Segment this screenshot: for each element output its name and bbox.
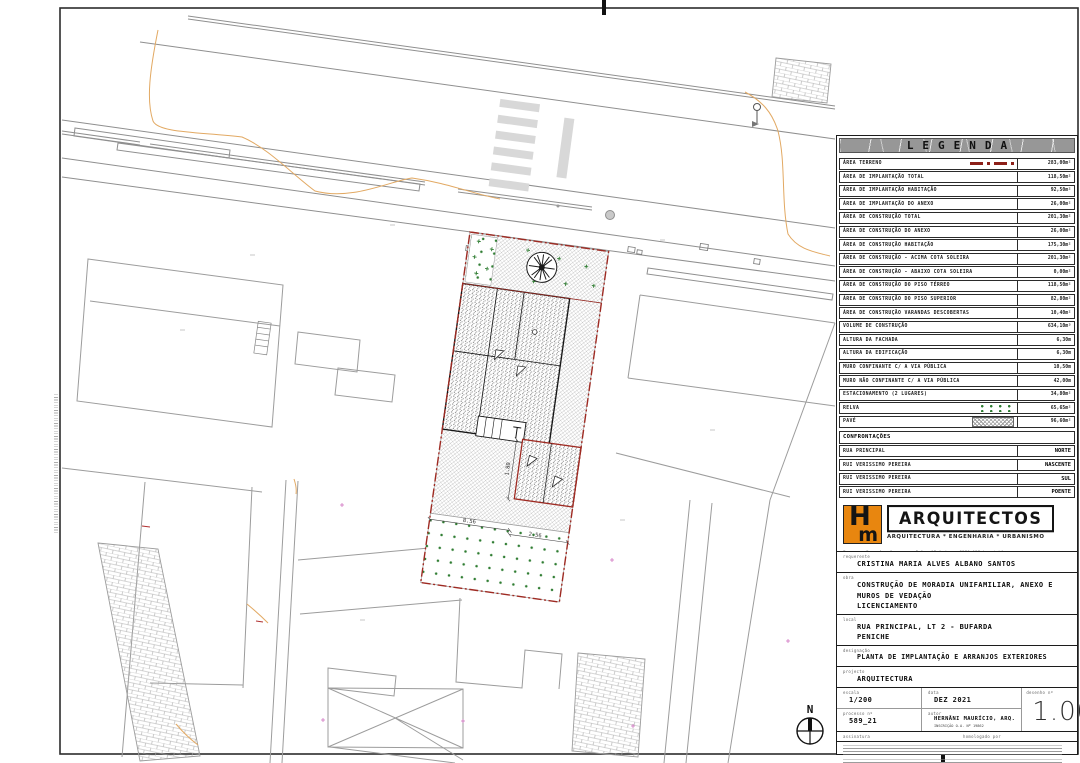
legend-row-label: ÁREA TERRENO (840, 159, 970, 169)
legend-row: RELVA 65,65m² (839, 402, 1075, 414)
legend-row-label: VOLUME DE CONSTRUÇÃO (840, 322, 1014, 332)
confrontacao-value: NORTE (1017, 446, 1074, 456)
legend-row-label: PAVÉ (840, 417, 972, 427)
author-registration: INSCRIÇÃO O.A. Nº 19862 (928, 724, 1015, 728)
confrontacao-row: RUI VERISSIMO PEREIRA SUL (839, 473, 1075, 485)
legend-row-label: ÁREA DE IMPLANTAÇÃO TOTAL (840, 172, 1014, 182)
legend-row-value: 201,30m² (1017, 213, 1074, 223)
field-local: local RUA PRINCIPAL, LT 2 - BUFARDA PENI… (837, 614, 1077, 645)
roads (62, 16, 835, 300)
legend-row-value: 26,00m² (1017, 227, 1074, 237)
fine-print-notes (837, 741, 1077, 763)
field-autor: autor HERNÂNI MAURÍCIO, ARQ. INSCRIÇÃO O… (922, 709, 1021, 731)
legend-table: ÁREA TERRENO 283,00m² ÁREA DE IMPLANTAÇÃ… (837, 155, 1077, 428)
confrontacoes-header: CONFRONTAÇÕES (839, 431, 1075, 444)
field-label: assinatura (843, 734, 951, 739)
legend-row-label: ÁREA DE CONSTRUÇÃO DO ANEXO (840, 227, 1014, 237)
legend-row-value: 118,50m² (1017, 172, 1074, 182)
scale-date-grid: escala 1/200 processo nº 589_21 data DEZ… (837, 687, 1077, 731)
legend-row-value: 42,00m (1017, 376, 1074, 386)
legend-row-value: 6,30m (1017, 349, 1074, 359)
project-description: CONSTRUÇÃO DE MORADIA UNIFAMILIAR, ANEXO… (843, 580, 1071, 590)
legend-row: ÁREA DE CONSTRUÇÃO DO ANEXO 26,00m² (839, 226, 1075, 238)
confrontacao-label: RUI VERISSIMO PEREIRA (840, 460, 1017, 470)
confrontacao-value: NASCENTE (1017, 460, 1074, 470)
legend-row: ÁREA DE IMPLANTAÇÃO HABITAÇÃO 92,50m² (839, 185, 1075, 197)
legend-row: MURO NÃO CONFINANTE C/ A VIA PÚBLICA 42,… (839, 375, 1075, 387)
north-label: N (807, 703, 814, 716)
field-obra: obra CONSTRUÇÃO DE MORADIA UNIFAMILIAR, … (837, 572, 1077, 613)
field-projecto: projecto ARQUITECTURA (837, 666, 1077, 687)
legend-row-label: ALTURA DA EDIFICAÇÃO (840, 349, 1014, 359)
client-name: CRISTINA MARIA ALVES ALBANO SANTOS (843, 559, 1071, 569)
legend-row-value: 34,80m² (1017, 390, 1074, 400)
legend-row-value: 634,10m³ (1017, 322, 1074, 332)
legend-row-value: 26,00m² (1017, 199, 1074, 209)
signature-row: assinatura homologado por (837, 731, 1077, 741)
field-escala: escala 1/200 (837, 688, 921, 709)
legend-row: ÁREA DE CONSTRUÇÃO VARANDAS DESCOBERTAS … (839, 307, 1075, 319)
legend-row-symbol-icon (970, 162, 1014, 165)
confrontacao-row: RUI VERISSIMO PEREIRA NASCENTE (839, 459, 1075, 471)
drawing-title: PLANTA DE IMPLANTAÇÃO E ARRANJOS EXTERIO… (843, 653, 1071, 663)
legend-row-label: MURO NÃO CONFINANTE C/ A VIA PÚBLICA (840, 376, 1014, 386)
legend-row: VOLUME DE CONSTRUÇÃO 634,10m³ (839, 321, 1075, 333)
field-data: data DEZ 2021 (922, 688, 1021, 709)
legend-row: ALTURA DA FACHADA 6,30m (839, 334, 1075, 346)
field-requerente: requerente CRISTINA MARIA ALVES ALBANO S… (837, 551, 1077, 572)
date-value: DEZ 2021 (928, 695, 1015, 705)
project-description: MUROS DE VEDAÇÃO (843, 591, 1071, 601)
scale-value: 1/200 (843, 695, 915, 705)
legend-row: ESTACIONAMENTO (2 LUGARES) 34,80m² (839, 389, 1075, 401)
legend-row-label: ÁREA DE CONSTRUÇÃO - ABAIXO COTA SOLEIRA (840, 267, 1014, 277)
legend-row-value: 6,30m (1017, 335, 1074, 345)
firm-monogram-logo: H m (843, 505, 882, 544)
legend-row-value: 82,80m² (1017, 295, 1074, 305)
field-processo: processo nº 589_21 (837, 709, 921, 729)
plot: 8.56 2.56 1.80 (419, 232, 611, 603)
confrontacoes-table: CONFRONTAÇÕES RUA PRINCIPAL NORTE RUI VE… (837, 431, 1077, 498)
field-label: desenho nº (1026, 690, 1053, 695)
legend-row-value: 201,30m² (1017, 254, 1074, 264)
legend-row-label: ÁREA DE CONSTRUÇÃO VARANDAS DESCOBERTAS (840, 308, 1014, 318)
legend-row: ÁREA DE IMPLANTAÇÃO TOTAL 118,50m² (839, 171, 1075, 183)
stairs-icon (254, 321, 271, 354)
legend-row-label: ÁREA DE IMPLANTAÇÃO HABITAÇÃO (840, 186, 1014, 196)
legend-row: ÁREA TERRENO 283,00m² (839, 158, 1075, 170)
drawing-number: 1.00 (1032, 697, 1080, 727)
title-block-panel: LEGENDA ÁREA TERRENO 283,00m² ÁREA DE IM… (836, 135, 1078, 755)
field-desenho: desenho nº 1.00 (1022, 688, 1080, 731)
confrontacao-value: SUL (1017, 474, 1074, 484)
drawing-sheet: 8.56 2.56 1.80 N LEGENDA ÁREA TERRENO 28… (0, 0, 1080, 763)
annex-footprint (514, 439, 581, 507)
crosswalk (489, 99, 576, 196)
confrontacao-row: RUA PRINCIPAL NORTE (839, 445, 1075, 457)
confrontacao-row: RUI VERISSIMO PEREIRA POENTE (839, 486, 1075, 498)
confrontacao-label: RUA PRINCIPAL (840, 446, 1017, 456)
legend-row-label: ESTACIONAMENTO (2 LUGARES) (840, 390, 1014, 400)
confrontacoes-title: CONFRONTAÇÕES (843, 434, 891, 440)
monogram-m: m (858, 524, 878, 546)
legend-row: ÁREA DE CONSTRUÇÃO - ACIMA COTA SOLEIRA … (839, 253, 1075, 265)
legend-row: ÁREA DE CONSTRUÇÃO TOTAL 201,30m² (839, 212, 1075, 224)
house-footprint (442, 283, 570, 446)
legend-row: ÁREA DE CONSTRUÇÃO DO PISO TÉRREO 118,50… (839, 280, 1075, 292)
signpost-icon (752, 104, 761, 128)
site-city: PENICHE (843, 632, 1071, 642)
legend-row: PAVÉ 96,60m² (839, 416, 1075, 428)
legend-row-label: MURO CONFINANTE C/ A VIA PÚBLICA (840, 363, 1014, 373)
legend-row: ÁREA DE CONSTRUÇÃO DO PISO SUPERIOR 82,8… (839, 294, 1075, 306)
firm-tagline: ARQUITECTURA * ENGENHARIA * URBANISMO (887, 534, 1071, 540)
process-number: 589_21 (843, 716, 915, 726)
project-phase: LICENCIAMENTO (843, 601, 1071, 611)
confrontacao-label: RUI VERISSIMO PEREIRA (840, 487, 1017, 497)
manhole-icon (606, 211, 615, 220)
legend-row-label: ÁREA DE CONSTRUÇÃO DO PISO SUPERIOR (840, 295, 1014, 305)
legend-row-symbol-icon (972, 417, 1014, 427)
discipline: ARQUITECTURA (843, 674, 1071, 684)
legend-row-symbol-icon (980, 404, 1014, 412)
confrontacao-value: POENTE (1017, 487, 1074, 497)
legend-row: ALTURA DA EDIFICAÇÃO 6,30m (839, 348, 1075, 360)
legend-row: MURO CONFINANTE C/ A VIA PÚBLICA 10,50m (839, 362, 1075, 374)
legend-row-value: 283,00m² (1017, 159, 1074, 169)
legend-row-value: 175,30m² (1017, 240, 1074, 250)
legend-row-label: ÁREA DE IMPLANTAÇÃO DO ANEXO (840, 199, 1014, 209)
legend-row-label: ÁREA DE CONSTRUÇÃO TOTAL (840, 213, 1014, 223)
legend-row-value: 10,50m (1017, 363, 1074, 373)
legend-row: ÁREA DE IMPLANTAÇÃO DO ANEXO 26,00m² (839, 198, 1075, 210)
site-address: RUA PRINCIPAL, LT 2 - BUFARDA (843, 622, 1071, 632)
legend-row-label: ÁREA DE CONSTRUÇÃO DO PISO TÉRREO (840, 281, 1014, 291)
firm-logo-block: H m ARQUITECTOS ARQUITECTURA * ENGENHARI… (837, 501, 1077, 547)
legend-row-label: ÁREA DE CONSTRUÇÃO - ACIMA COTA SOLEIRA (840, 254, 1014, 264)
confrontacao-label: RUI VERISSIMO PEREIRA (840, 474, 1017, 484)
legend-row: ÁREA DE CONSTRUÇÃO - ABAIXO COTA SOLEIRA… (839, 266, 1075, 278)
legend-title: LEGENDA (898, 139, 1016, 152)
north-arrow: N (797, 703, 823, 744)
legend-row-value: 118,50m² (1017, 281, 1074, 291)
legend-row: ÁREA DE CONSTRUÇÃO HABITAÇÃO 175,30m² (839, 239, 1075, 251)
field-designacao: designação PLANTA DE IMPLANTAÇÃO E ARRAN… (837, 645, 1077, 666)
legend-row-label: ÁREA DE CONSTRUÇÃO HABITAÇÃO (840, 240, 1014, 250)
legend-row-value: 0,00m² (1017, 267, 1074, 277)
margin-plot-stamp (54, 393, 58, 533)
legend-header: LEGENDA (839, 138, 1075, 153)
legend-row-label: ALTURA DA FACHADA (840, 335, 1014, 345)
legend-row-label: RELVA (840, 403, 980, 413)
legend-row-value: 65,65m² (1017, 403, 1074, 413)
author-name: HERNÂNI MAURÍCIO, ARQ. (928, 716, 1015, 724)
legend-row-value: 92,50m² (1017, 186, 1074, 196)
legend-row-value: 96,60m² (1017, 417, 1074, 427)
fold-mark-top (602, 0, 606, 15)
firm-name: ARQUITECTOS (887, 505, 1054, 532)
legend-row-value: 10,40m² (1017, 308, 1074, 318)
field-label: homologado por (963, 734, 1071, 739)
